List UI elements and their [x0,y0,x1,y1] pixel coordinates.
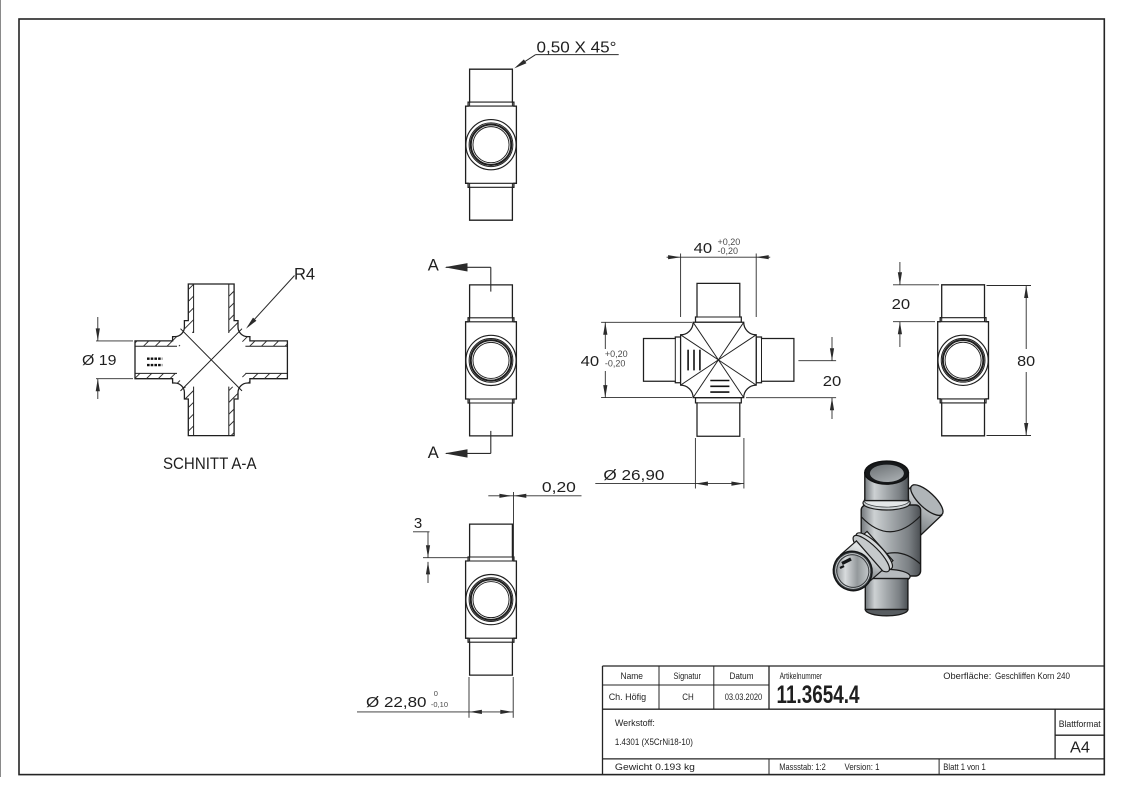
svg-text:Geschliffen Korn 240: Geschliffen Korn 240 [995,671,1070,682]
svg-text:20: 20 [823,373,842,390]
svg-text:Ø 26,90: Ø 26,90 [603,467,664,484]
svg-text:SCHNITT A-A: SCHNITT A-A [163,454,257,473]
svg-text:Name: Name [621,671,644,682]
svg-text:0: 0 [434,689,438,698]
svg-text:0,50 X 45°: 0,50 X 45° [537,40,617,57]
svg-text:Datum: Datum [730,671,754,682]
svg-text:Version: 1: Version: 1 [845,762,880,773]
svg-text:Signatur: Signatur [674,671,702,682]
svg-text:Massstab: 1:2: Massstab: 1:2 [779,762,826,773]
svg-text:Gewicht 0.193 kg: Gewicht 0.193 kg [615,762,695,773]
svg-text:-0,20: -0,20 [718,246,739,256]
svg-text:Blattformat: Blattformat [1059,719,1101,730]
svg-text:-0,20: -0,20 [605,359,626,369]
svg-text:Ø 22,80: Ø 22,80 [366,694,427,711]
svg-text:Oberfläche:: Oberfläche: [943,671,991,682]
svg-text:Werkstoff:: Werkstoff: [615,718,655,729]
svg-text:+0,20: +0,20 [605,349,628,359]
svg-text:20: 20 [892,296,911,313]
svg-text:A4: A4 [1070,740,1090,757]
svg-text:R4: R4 [294,265,315,283]
svg-text:11.3654.4: 11.3654.4 [777,681,860,709]
svg-text:A: A [428,444,439,462]
svg-text:80: 80 [1017,353,1035,370]
svg-text:40: 40 [694,240,713,257]
svg-text:Ch. Höfig: Ch. Höfig [609,692,647,703]
svg-text:CH: CH [682,692,694,703]
svg-text:0,20: 0,20 [542,479,576,496]
svg-text:A: A [428,257,439,275]
svg-text:Ø 19: Ø 19 [82,352,117,369]
svg-text:1.4301 (X5CrNi18-10): 1.4301 (X5CrNi18-10) [615,737,693,748]
svg-text:3: 3 [414,515,422,532]
svg-text:03.03.2020: 03.03.2020 [725,692,763,703]
svg-text:-0,10: -0,10 [431,700,448,709]
svg-text:40: 40 [581,353,600,370]
svg-text:Blatt 1 von 1: Blatt 1 von 1 [943,762,986,773]
